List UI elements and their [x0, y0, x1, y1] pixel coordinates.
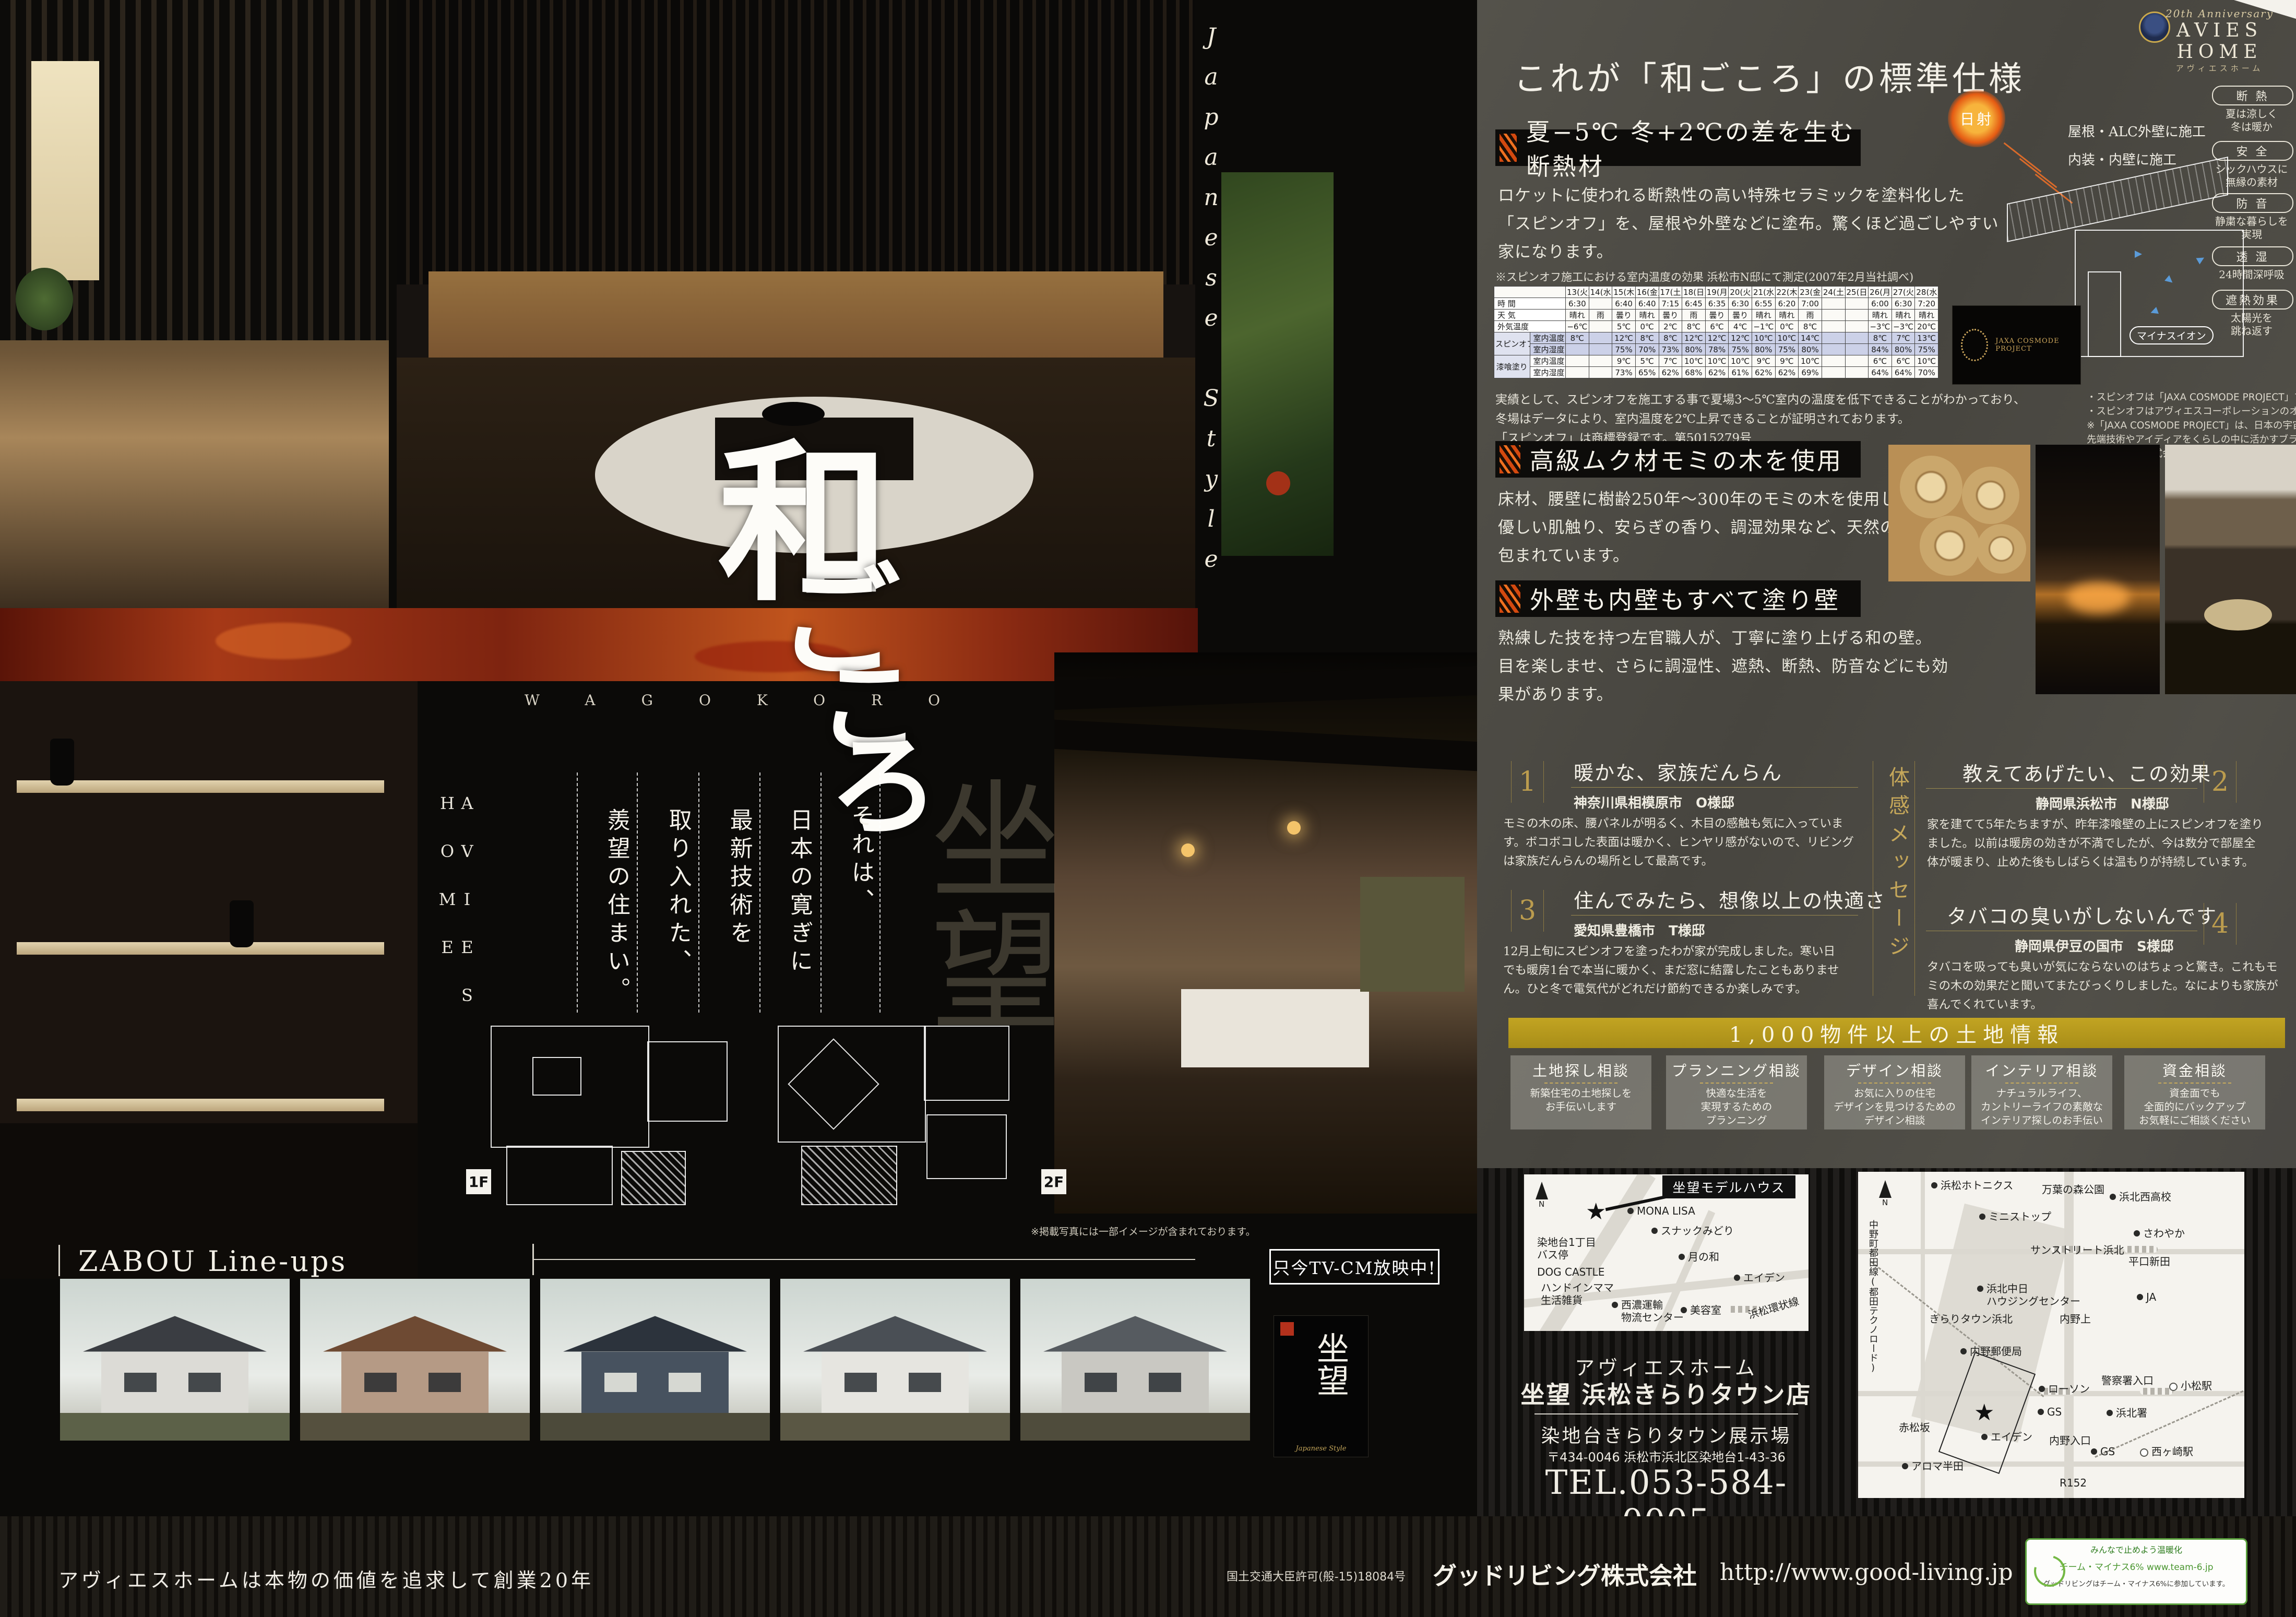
map-label: 月の和 — [1679, 1251, 1719, 1263]
floor-label-1f: 1F — [466, 1169, 491, 1194]
testimonial-3-number: 3 — [1511, 890, 1544, 932]
map-label: 浜北中日 ハウジングセンター — [1977, 1282, 2080, 1307]
roof-coating-label: 屋根・ALC外壁に施工 — [2068, 121, 2206, 140]
testimonial-4-number: 4 — [2204, 903, 2236, 945]
map-label: 小松駅 — [2169, 1380, 2212, 1392]
footer-url: http://www.good-living.jp — [1720, 1559, 2013, 1586]
section-insulation-bar: 夏−5℃ 冬+2℃の差を生む断熱材 — [1495, 129, 1861, 166]
low-table — [715, 418, 913, 480]
table-note: ※スピンオフ施工における室内温度の効果 浜松市N邸にて測定(2007年2月当社調… — [1495, 269, 1913, 284]
testimonial-3-body: 12月上旬にスピンオフを塗ったわが家が完成しました。寒い日でも暖房1台で本当に暖… — [1503, 942, 1839, 998]
consult-box-design: デザイン相談 お気に入りの住宅デザインを見つけるためのデザイン相談 — [1824, 1055, 1965, 1129]
tagline-separator — [637, 772, 638, 1013]
fireplace-photo — [2036, 445, 2160, 694]
map-label: 赤松坂 — [1899, 1421, 1930, 1434]
map-label: 中野町都田線(都田テクノロード) — [1866, 1220, 1879, 1373]
lineups-title: ZABOU Line-ups — [78, 1245, 347, 1278]
north-arrow — [1879, 1180, 1891, 1198]
consult-box-finance: 資金相談 資金面でも全面的にバックアップお気軽にご相談ください — [2124, 1055, 2265, 1129]
map-label: GS — [2091, 1445, 2115, 1458]
red-seal-icon — [1280, 1322, 1294, 1336]
footer-strip: アヴィエスホームは本物の価値を追求して創業20年 国土交通大臣許可(般-15)1… — [0, 1516, 2296, 1617]
map-label: GS — [2038, 1406, 2062, 1418]
lineup-house-photo-5 — [1020, 1279, 1250, 1441]
maple-leaves-photo — [0, 608, 1198, 681]
jaxa-ring-icon — [1961, 329, 1988, 361]
map-label: 内野郵便局 — [1960, 1345, 2022, 1358]
garden-photo — [1221, 172, 1334, 556]
lineups-tick — [58, 1245, 60, 1276]
map-label: さわやか — [2134, 1227, 2185, 1240]
brand-name: AVIES HOME — [2145, 20, 2294, 63]
momi-body: 床材、腰壁に樹齢250年〜300年のモミの木を使用します。優しい肌触り、安らぎの… — [1498, 485, 1947, 570]
north-arrow — [1536, 1182, 1548, 1199]
section-momi-title: 高級ムク材モミの木を使用 — [1530, 442, 1843, 477]
tv-cm-badge: 只今TV-CM放映中! — [1269, 1249, 1440, 1285]
contact-address: 〒434-0046 浜松市浜北区染地台1-43-36 — [1514, 1447, 1819, 1465]
zabou-logo-name: 坐望 — [1306, 1331, 1353, 1396]
brush-icon — [1500, 445, 1520, 473]
map-label: エイデン — [1981, 1431, 2032, 1443]
land-info-banner: 1,000物件以上の土地情報 — [1508, 1018, 2285, 1048]
testimonial-1-title: 暖かな、家族だんらん — [1574, 757, 1782, 786]
map-label: MONA LISA — [1627, 1205, 1695, 1217]
plant — [16, 268, 73, 330]
testimonial-4-location: 静岡県伊豆の国市 S様邸 — [2015, 936, 2174, 955]
tagline-separator — [577, 772, 578, 1013]
living-room-photo — [397, 0, 1195, 608]
floor-label-2f: 2F — [1041, 1169, 1066, 1194]
testimonial-4-body: タバコを吸っても臭いが気にならないのはちょっと驚き。これもモミの木の効果だと聞い… — [1927, 958, 2278, 1014]
tagline-column: 羨望の住まい。 — [600, 808, 632, 1005]
tagline-separator — [698, 772, 699, 1013]
brush-icon — [1500, 585, 1520, 613]
testimonial-2-number: 2 — [2204, 761, 2236, 803]
consult-box-body: 資金面でも全面的にバックアップお気軽にご相談ください — [2124, 1087, 2265, 1127]
tagline-column: それは、 — [844, 804, 876, 917]
brand-crest: 20th Anniversary AVIES HOME アヴィエスホーム — [2145, 7, 2294, 74]
jaxa-logo-text: JAXA COSMODE PROJECT — [1995, 337, 2080, 353]
map-label: 万葉の森公園 — [2042, 1183, 2104, 1196]
consult-box-body: 快適な生活を実現するためのプランニング — [1666, 1087, 1807, 1127]
consult-box-body: お気に入りの住宅デザインを見つけるためのデザイン相談 — [1824, 1087, 1965, 1127]
consult-box-body: 新築住宅の土地探しをお手伝いします — [1510, 1087, 1651, 1114]
model-house-map-title: 坐望モデルハウス — [1662, 1175, 1795, 1198]
map-label: R152 — [2060, 1477, 2087, 1489]
map-label: 西濃運輸 物流センター — [1612, 1299, 1684, 1324]
map-label: 内野入口 — [2049, 1434, 2091, 1447]
map-label: 平口新田 — [2128, 1255, 2170, 1268]
sideboard — [429, 271, 1163, 358]
tagline-column: 取り入れた、 — [662, 808, 694, 977]
map-label: スナックみどり — [1651, 1224, 1734, 1237]
map-label: アロマ半田 — [1902, 1460, 1964, 1472]
sun-icon: 日射 — [1948, 90, 2005, 147]
consult-box-interior: インテリア相談 ナチュラルライフ、カントリーライフの素敵なインテリア探しのお手伝… — [1971, 1055, 2112, 1129]
testimonial-2-body: 家を建てて5年たちますが、昨年漆喰壁の上にスピンオフを塗りました。以前は暖房の効… — [1927, 815, 2263, 872]
map-label: 美容室 — [1681, 1304, 1721, 1316]
slat-wall — [397, 0, 1195, 284]
kitchen-photo — [1054, 652, 1477, 1214]
area-map: ★ 浜松ホトニクス万葉の森公園浜北西高校ミニストップさわやかサンストリート浜北平… — [1858, 1172, 2244, 1498]
doorway-light — [31, 61, 99, 280]
store-star: ★ — [1974, 1401, 1994, 1424]
testimonial-1-body: モミの木の床、腰パネルが明るく、木目の感触も気に入っています。ボコボコした表面は… — [1503, 814, 1854, 871]
brochure-spread: Japanese Style 和 ご こ ろ WAGOKORO AVIES HO… — [0, 0, 2296, 1617]
section-momi-bar: 高級ムク材モミの木を使用 — [1495, 441, 1861, 478]
wall-coating-label: 内装・内壁に施工 — [2068, 149, 2176, 169]
feature-desc: 夏は涼しく冬は暖か — [2194, 108, 2296, 134]
consult-box-land: 土地探し相談 新築住宅の土地探しをお手伝いします — [1510, 1055, 1651, 1129]
map-label: 西ヶ崎駅 — [2140, 1445, 2193, 1458]
eco-slogan: みんなで止めよう温暖化 — [2027, 1543, 2246, 1555]
photo-disclaimer: ※掲載写真には一部イメージが含まれております。 — [1031, 1224, 1256, 1238]
testimonial-1-number: 1 — [1511, 761, 1544, 803]
testimonial-2-location: 静岡県浜松市 N様邸 — [2036, 793, 2169, 813]
insulation-body: ロケットに使われる断熱性の高い特殊セラミックを塗料化した「スピンオフ」を、屋根や… — [1498, 182, 1999, 266]
entry-hall-photo — [0, 0, 389, 608]
jaxa-cosmode-logo: JAXA COSMODE PROJECT — [1952, 305, 2081, 385]
eco-badge: みんなで止めよう温暖化 チーム・マイナス6% www.team-6.jp グッド… — [2025, 1538, 2247, 1605]
consult-box-title: 資金相談 — [2124, 1060, 2265, 1080]
map-label: 浜北西高校 — [2110, 1191, 2171, 1203]
tagline-separator — [879, 772, 881, 1013]
testimonial-3-location: 愛知県豊橋市 T様邸 — [1574, 920, 1705, 940]
section-wall-bar: 外壁も内壁もすべて塗り壁 — [1495, 580, 1861, 617]
consult-box-planning: プランニング相談 快適な生活を実現するためのプランニング — [1666, 1055, 1807, 1129]
footer-company: グッドリビング株式会社 — [1433, 1557, 1697, 1591]
lineup-house-photo-3 — [540, 1279, 770, 1441]
testimonial-4-title: タバコの臭いがしないんです — [1947, 900, 2217, 929]
consult-box-title: インテリア相談 — [1971, 1060, 2112, 1080]
wall-body: 熟練した技を持つ左官職人が、丁寧に塗り上げる和の壁。目を楽しませ、さらに調湿性、… — [1498, 624, 1948, 709]
contact-store: 坐望 浜松きらりタウン店 — [1514, 1376, 1819, 1410]
map-label: 内野上 — [2060, 1313, 2091, 1325]
lineup-house-photo-2 — [300, 1279, 530, 1441]
zabou-logo-style: Japanese Style — [1274, 1445, 1368, 1453]
page-title: これが「和ごころ」の標準仕様 — [1514, 52, 2025, 100]
tagline-separator — [759, 772, 760, 1013]
footer-license: 国土交通大臣許可(般-15)18084号 — [1227, 1567, 1406, 1584]
brand-name-kana: アヴィエスホーム — [2145, 63, 2294, 74]
tatami-living-photo — [2165, 445, 2296, 694]
model-house-star: ★ — [1586, 1200, 1606, 1223]
testimonial-1-location: 神奈川県相模原市 O様邸 — [1574, 792, 1734, 812]
consult-box-title: プランニング相談 — [1666, 1060, 1807, 1080]
footer-tagline: アヴィエスホームは本物の価値を追求して創業20年 — [58, 1564, 594, 1593]
map-label: JA — [2137, 1291, 2156, 1303]
map-label: DOG CASTLE — [1537, 1266, 1604, 1278]
map-label: 警察署入口 — [2101, 1374, 2154, 1387]
map-label: 浜松環状線 — [1747, 1295, 1801, 1322]
temperature-table: 13(火)14(水)15(木)16(金)17(土)18(日)19(月)20(火)… — [1494, 286, 1938, 378]
lineup-house-photo-4 — [780, 1279, 1010, 1441]
red-flower — [1266, 471, 1290, 495]
testimonial-2-title: 教えてあげたい、この効果 — [1962, 758, 2211, 787]
zabou-watermark: 坐望 — [919, 772, 1049, 1033]
wagokoro-roman-text: WAGOKORO — [525, 692, 986, 709]
floor-plan-1f — [485, 1020, 733, 1214]
map-label: ミニストップ — [1979, 1210, 2051, 1223]
taikan-message-vertical: 体感メッセージ — [1882, 766, 1912, 964]
consult-box-title: 土地探し相談 — [1510, 1060, 1651, 1080]
contact-showroom: 染地台きらりタウン展示場 — [1524, 1421, 1809, 1448]
tagline-separator — [820, 772, 822, 1013]
consult-box-title: デザイン相談 — [1824, 1060, 1965, 1080]
tagline-column: 日本の寛ぎに — [783, 808, 815, 977]
map-label: ローソン — [2039, 1383, 2090, 1395]
feature-pill: 防 音 — [2212, 193, 2293, 213]
map-label: エイデン — [1734, 1271, 1785, 1284]
floor-plan-2f — [770, 1020, 1018, 1214]
shelf-photo — [0, 681, 418, 1279]
section-wall-title: 外壁も内壁もすべて塗り壁 — [1530, 581, 1840, 616]
momi-logs-photo — [1888, 445, 2030, 581]
bowl — [762, 402, 825, 426]
map-label: 浜松ホトニクス — [1931, 1179, 2013, 1192]
map-label: 浜北署 — [2107, 1407, 2147, 1419]
section-insulation-title: 夏−5℃ 冬+2℃の差を生む断熱材 — [1526, 113, 1861, 182]
consult-box-body: ナチュラルライフ、カントリーライフの素敵なインテリア探しのお手伝い — [1971, 1087, 2112, 1127]
lineup-house-photo-1 — [60, 1279, 290, 1441]
japanese-style-vertical-text: Japanese Style — [1198, 23, 1224, 608]
insulation-after-table: 実績として、スピンオフを施工する事で夏場3〜5℃室内の温度を低下できることがわか… — [1495, 390, 2026, 448]
minus-ion-label: マイナスイオン — [2130, 326, 2214, 344]
feature-pill: 断 熱 — [2212, 86, 2293, 105]
map-label: きらりタウン浜北 — [1929, 1313, 2013, 1325]
tagline-column: 最新技術を — [723, 808, 755, 949]
map-label: 染地台1丁目 バス停 — [1537, 1236, 1596, 1261]
brush-icon — [1500, 134, 1517, 162]
zabou-logo: 坐望 Japanese Style — [1274, 1315, 1369, 1457]
map-label: サンストリート浜北 — [2030, 1244, 2124, 1256]
tagline-block: それは、日本の寛ぎに最新技術を取り入れた、羨望の住まい。 — [564, 772, 908, 1018]
testimonial-3-title: 住んでみたら、想像以上の快適さ — [1574, 885, 1886, 913]
map-label: ハンドインママ 生活雑貨 — [1541, 1281, 1614, 1306]
